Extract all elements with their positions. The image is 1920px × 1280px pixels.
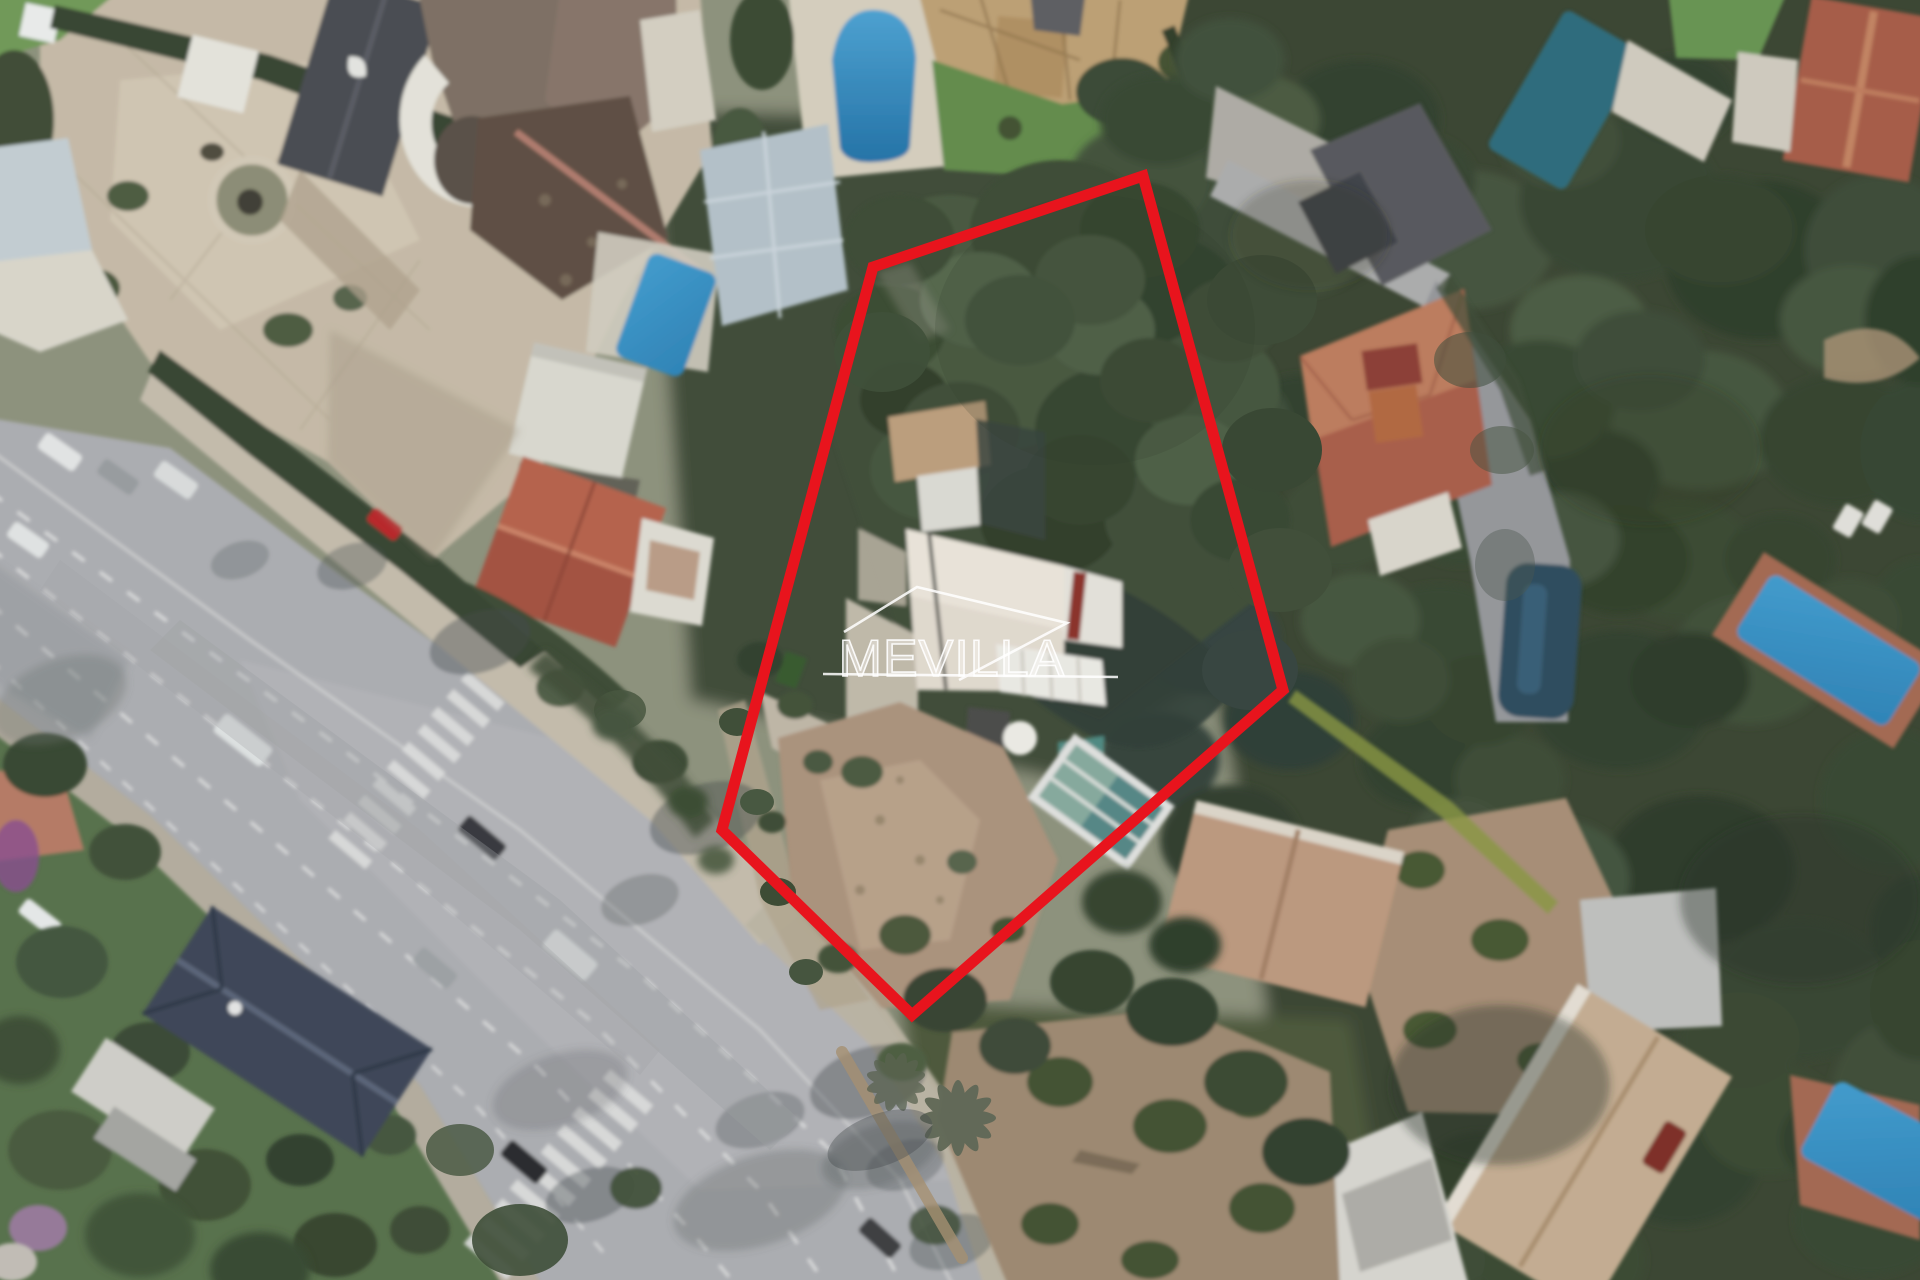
- svg-text:MEVILLA: MEVILLA: [839, 630, 1066, 688]
